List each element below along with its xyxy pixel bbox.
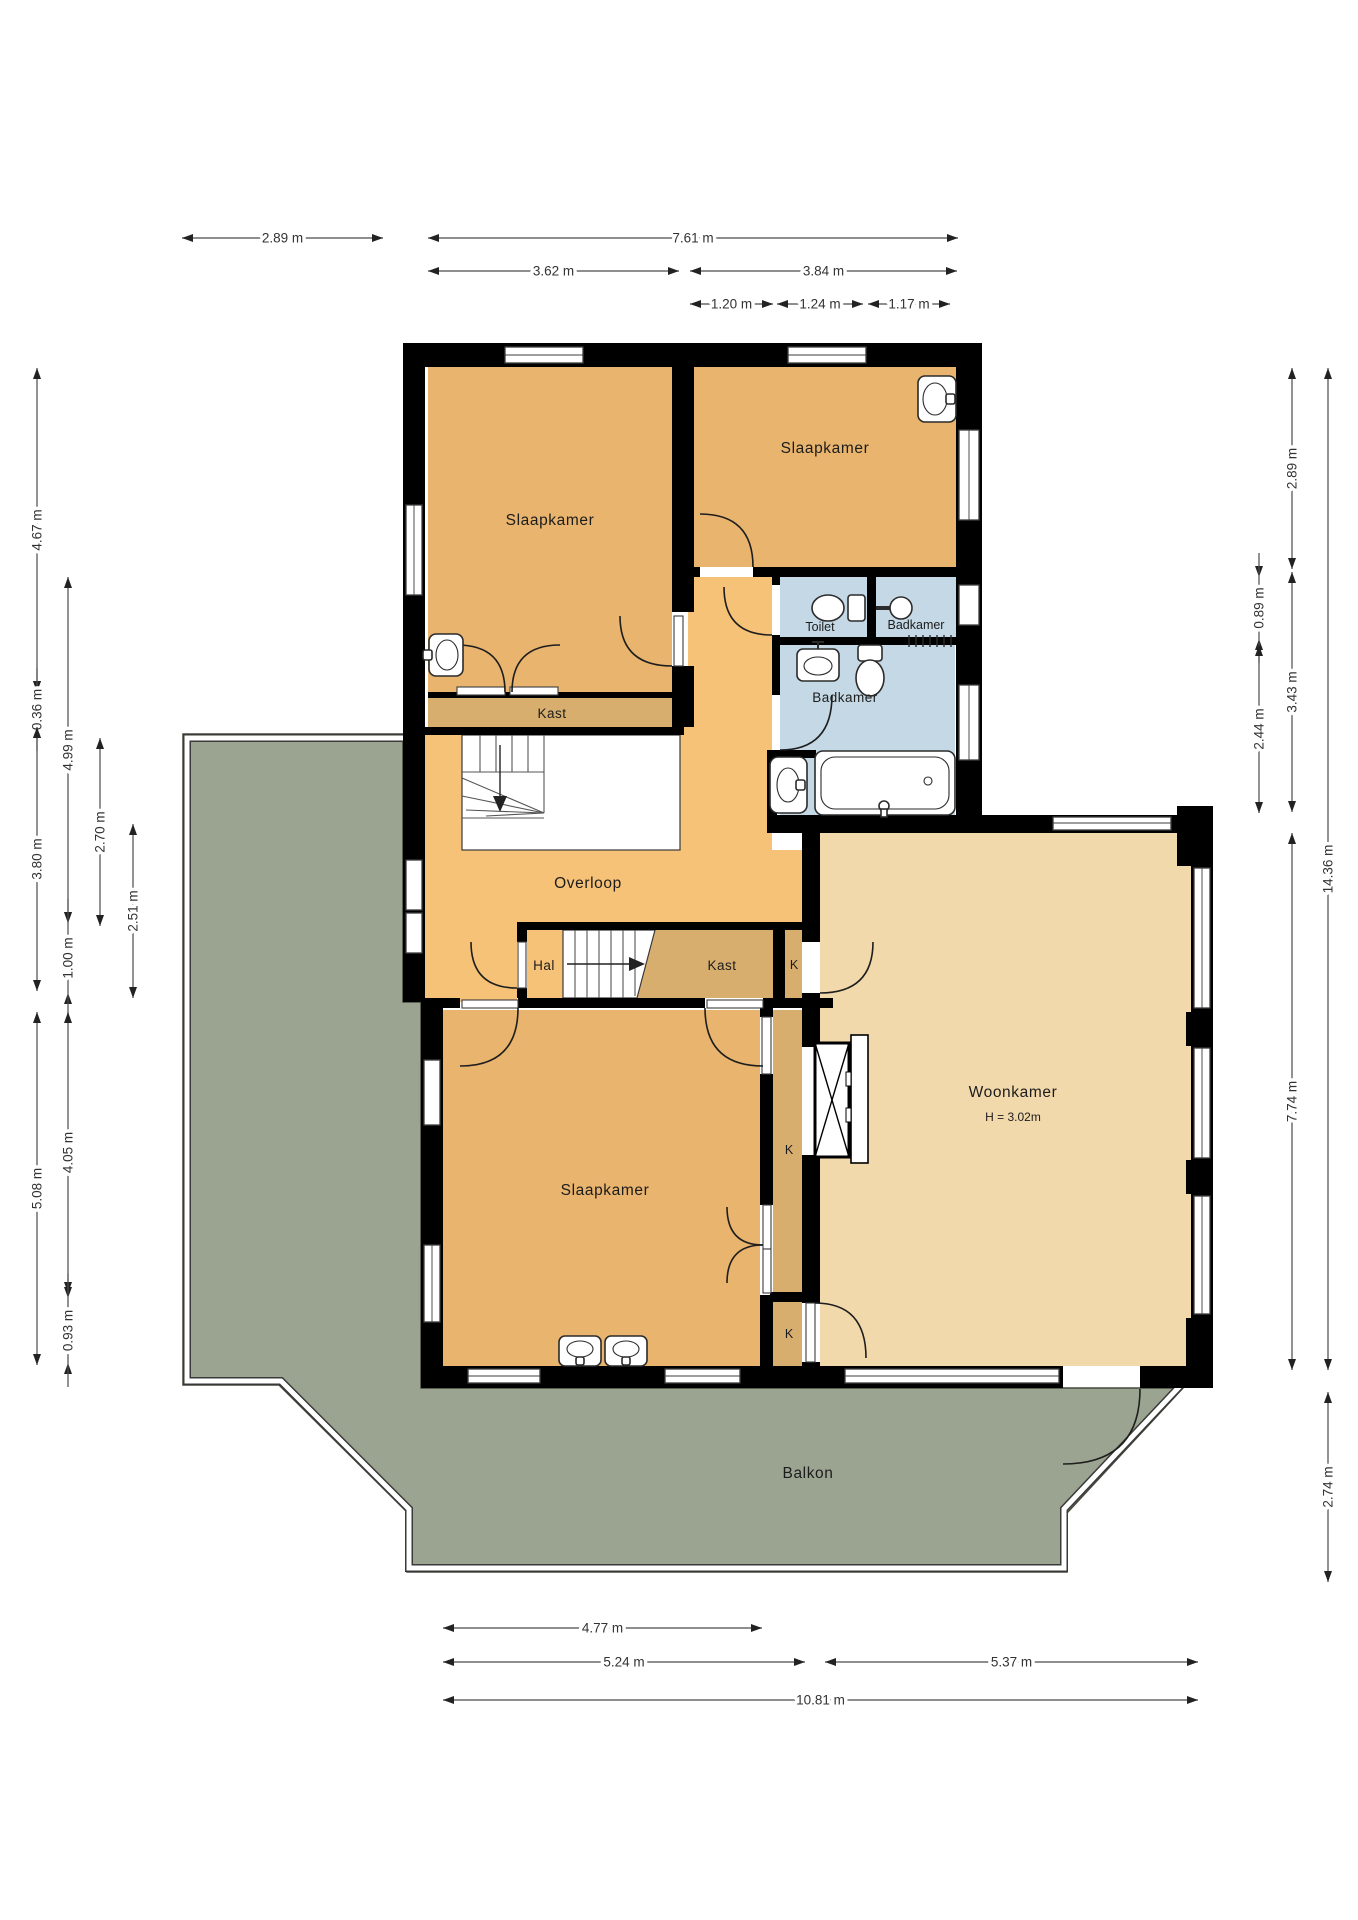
dimension-label: 1.17 m bbox=[888, 297, 929, 312]
toilet-icon bbox=[812, 595, 865, 621]
room-corridor bbox=[688, 577, 772, 735]
dimension: 4.67 m bbox=[30, 368, 45, 692]
dimension: 14.36 m bbox=[1321, 368, 1336, 1370]
label-living: Woonkamer bbox=[969, 1084, 1058, 1101]
dimension-label: 14.36 m bbox=[1321, 845, 1336, 894]
window-icon bbox=[959, 585, 979, 625]
dimension-label: 2.44 m bbox=[1252, 708, 1267, 749]
door-leaf bbox=[462, 1000, 518, 1008]
door-leaf bbox=[806, 1303, 815, 1362]
dimension-label: 5.08 m bbox=[30, 1168, 45, 1209]
door-leaf bbox=[518, 942, 526, 988]
dimension-label: 2.74 m bbox=[1321, 1466, 1336, 1507]
dimension: 5.37 m bbox=[825, 1655, 1198, 1670]
bathtub-icon bbox=[815, 751, 955, 817]
label-k-top: K bbox=[790, 958, 799, 972]
dimension-label: 4.77 m bbox=[582, 1621, 623, 1636]
room-bedroom-top-right bbox=[694, 367, 956, 567]
dimension: 2.44 m bbox=[1252, 645, 1267, 813]
dimension-label: 0.89 m bbox=[1252, 587, 1267, 628]
door-leaf bbox=[457, 687, 505, 695]
dimension: 2.51 m bbox=[126, 824, 141, 998]
sink-icon bbox=[918, 376, 956, 422]
sink-icon bbox=[605, 1336, 647, 1366]
label-bedroom-top-left: Slaapkamer bbox=[506, 512, 595, 529]
dimension-label: 2.51 m bbox=[126, 890, 141, 931]
dimension: 5.08 m bbox=[30, 1012, 45, 1365]
dimension: 3.84 m bbox=[690, 264, 957, 279]
dimension-label: 4.99 m bbox=[61, 729, 76, 770]
door-leaf bbox=[707, 1000, 763, 1008]
door-leaf bbox=[674, 616, 683, 666]
window-icon bbox=[1053, 817, 1171, 830]
dimension-label: 5.24 m bbox=[603, 1655, 644, 1670]
label-k-mid: K bbox=[785, 1143, 794, 1157]
grille-icon bbox=[909, 635, 951, 647]
floor-plan: Slaapkamer Slaapkamer Toilet Badkamer Ba… bbox=[0, 0, 1358, 1920]
dimension: 5.24 m bbox=[443, 1655, 805, 1670]
dimension-label: 2.89 m bbox=[1285, 448, 1300, 489]
dimension: 3.62 m bbox=[428, 264, 679, 279]
dimension-label: 5.37 m bbox=[991, 1655, 1032, 1670]
label-closet-top: Kast bbox=[537, 706, 566, 721]
label-bathroom-upper: Badkamer bbox=[888, 618, 945, 632]
dimension-label: 1.24 m bbox=[799, 297, 840, 312]
room-landing-left bbox=[425, 735, 462, 850]
label-toilet: Toilet bbox=[805, 620, 835, 634]
window-icon bbox=[406, 913, 422, 953]
toilet-icon bbox=[856, 645, 884, 696]
room-landing-rightofvoid bbox=[680, 727, 772, 850]
shaft-icon bbox=[815, 1035, 868, 1163]
dimension: 2.70 m bbox=[93, 738, 108, 926]
room-bedroom-top-left bbox=[428, 367, 672, 692]
dimension: 3.80 m bbox=[30, 727, 45, 991]
label-bathroom-main: Badkamer bbox=[812, 690, 878, 705]
label-landing: Overloop bbox=[554, 875, 622, 892]
door-leaf bbox=[763, 1205, 771, 1249]
dimension-label: 3.43 m bbox=[1285, 671, 1300, 712]
label-hall: Hal bbox=[533, 958, 555, 973]
dimension: 10.81 m bbox=[443, 1693, 1198, 1708]
dimension: 1.20 m bbox=[690, 297, 773, 312]
label-k-bottom: K bbox=[785, 1327, 794, 1341]
room-k-column bbox=[773, 1010, 802, 1366]
label-bedroom-top-right: Slaapkamer bbox=[781, 440, 870, 457]
dimension: 1.24 m bbox=[777, 297, 863, 312]
label-bedroom-bottom: Slaapkamer bbox=[561, 1182, 650, 1199]
door-leaf bbox=[510, 687, 558, 695]
dimension-label: 4.05 m bbox=[61, 1132, 76, 1173]
sink-icon bbox=[423, 634, 463, 676]
dimension-label: 1.20 m bbox=[711, 297, 752, 312]
dimension-label: 7.74 m bbox=[1285, 1081, 1300, 1122]
room-landing-rowleft bbox=[425, 922, 517, 1002]
dimension: 7.74 m bbox=[1285, 833, 1300, 1370]
dimension: 1.00 m bbox=[61, 899, 76, 1017]
label-closet-mid: Kast bbox=[707, 958, 736, 973]
dimension: 4.77 m bbox=[443, 1621, 762, 1636]
dimension-label: 7.61 m bbox=[672, 231, 713, 246]
dimension-label: 0.36 m bbox=[30, 689, 45, 730]
dimension: 2.89 m bbox=[182, 231, 383, 246]
dimension-label: 3.62 m bbox=[533, 264, 574, 279]
dimension: 7.61 m bbox=[428, 231, 958, 246]
dimension: 1.17 m bbox=[868, 297, 950, 312]
label-balcony: Balkon bbox=[783, 1465, 834, 1482]
dimension: 2.89 m bbox=[1285, 368, 1300, 569]
dimension-label: 2.89 m bbox=[262, 231, 303, 246]
dimension: 4.05 m bbox=[61, 1012, 76, 1293]
dimension-label: 4.67 m bbox=[30, 509, 45, 550]
room-closet-mid bbox=[637, 930, 773, 998]
sink-icon bbox=[770, 757, 807, 813]
dimension-label: 3.84 m bbox=[803, 264, 844, 279]
dimension: 3.43 m bbox=[1285, 572, 1300, 812]
dimension-label: 2.70 m bbox=[93, 811, 108, 852]
dimension-label: 1.00 m bbox=[61, 937, 76, 978]
window-icon bbox=[406, 860, 422, 910]
sink-icon bbox=[559, 1336, 601, 1366]
window-icon bbox=[424, 1060, 440, 1125]
dimension-label: 10.81 m bbox=[796, 1693, 845, 1708]
door-leaf bbox=[763, 1249, 771, 1293]
dimension-label: 3.80 m bbox=[30, 838, 45, 879]
label-living-height: H = 3.02m bbox=[985, 1110, 1041, 1124]
dimension: 4.99 m bbox=[61, 577, 76, 923]
dimension: 2.74 m bbox=[1321, 1392, 1336, 1582]
door-leaf bbox=[762, 1017, 771, 1074]
dimension-label: 0.93 m bbox=[61, 1310, 76, 1351]
dimension: 0.93 m bbox=[61, 1274, 76, 1387]
